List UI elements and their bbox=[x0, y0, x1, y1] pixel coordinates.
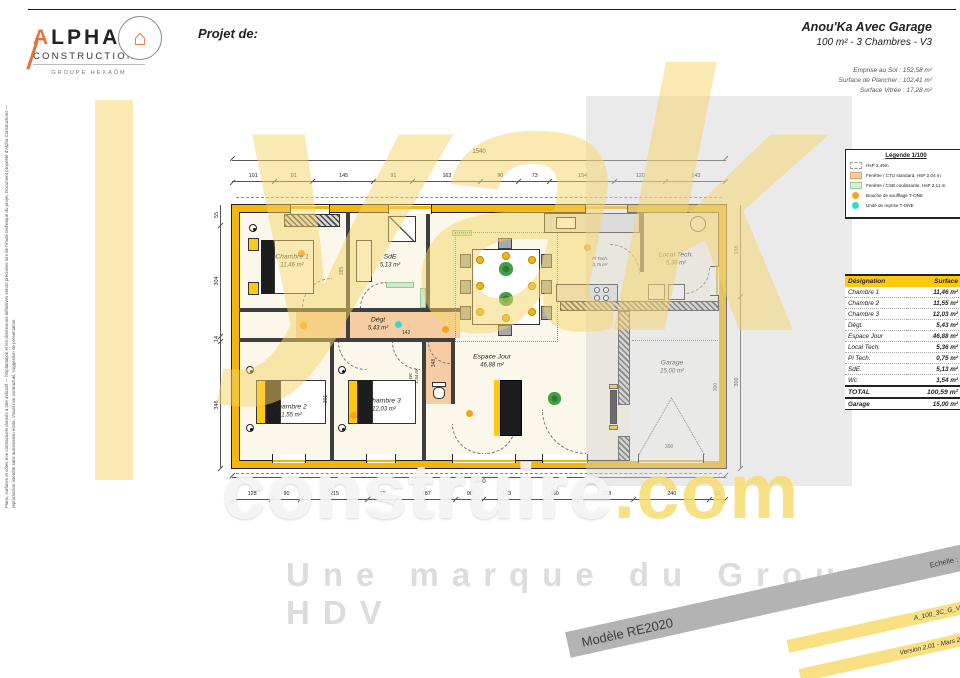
dim-segment: 187 bbox=[397, 498, 456, 500]
tv-shelf bbox=[609, 425, 618, 430]
patio-door-sejour bbox=[452, 454, 516, 463]
inner-dim: 142 bbox=[402, 330, 410, 336]
dim-segment: 90 bbox=[368, 498, 396, 500]
dim-chain-bottom: 12890215901879014316017324052 bbox=[232, 488, 726, 500]
model-code: Modèle RE2020 bbox=[580, 614, 674, 649]
sofa bbox=[500, 380, 522, 436]
table-row: SdE.5,13 m² bbox=[845, 364, 960, 375]
legend-item: Fenêtre / CSB coulissante, HsP 2,11 m bbox=[850, 182, 960, 189]
green-swatch-icon bbox=[850, 182, 862, 189]
room-label-pl-tech: Pl Tech.0,75 m² bbox=[592, 256, 608, 268]
legend-box: Légende 1/100 HsP 2,49mFenêtre / CTU sta… bbox=[845, 149, 960, 219]
wall-localtech-west bbox=[640, 212, 644, 272]
project-label: Projet de: bbox=[198, 26, 258, 41]
supply-vent-dot bbox=[300, 322, 307, 329]
lamp-icon bbox=[338, 424, 346, 432]
lamp-icon bbox=[246, 366, 254, 374]
chair bbox=[541, 280, 552, 294]
scale-label: Echelle : 1/75 bbox=[929, 551, 960, 570]
dim-segment: 90 bbox=[481, 180, 519, 182]
dim-segment: 240 bbox=[634, 498, 710, 500]
patio-door-sejour-2 bbox=[542, 454, 588, 463]
metric-emprise: Emprise au Sol : 152,58 m² bbox=[838, 66, 932, 76]
plan-sheet: AALPHALPHA CONSTRUCTIONS GROUPE HEXAÔM ⌂… bbox=[0, 0, 960, 678]
metric-plancher: Surface de Plancher : 102,41 m² bbox=[838, 76, 932, 86]
legend-item: Bouche de soufflage T-ONE bbox=[850, 192, 960, 199]
dashed-white-swatch-icon bbox=[850, 162, 862, 169]
water-heater bbox=[690, 216, 706, 232]
green-joinery-band-1 bbox=[386, 282, 414, 288]
plate bbox=[528, 308, 536, 316]
table-header-designation: Désignation bbox=[845, 276, 907, 287]
legal-disclaimer: Plans, surfaces et côtes non contractuel… bbox=[3, 88, 16, 508]
washer bbox=[648, 284, 665, 300]
wall-wc-east bbox=[451, 338, 455, 404]
model-subtitle: 100 m² - 3 Chambres - V3 bbox=[802, 37, 932, 48]
table-row: Local Tech.5,36 m² bbox=[845, 342, 960, 353]
dim-chain-right: 158300 bbox=[734, 205, 746, 468]
table-row: Garage15,00 m² bbox=[845, 398, 960, 410]
hob-burner bbox=[594, 287, 600, 293]
wall-chambre1-south bbox=[239, 308, 350, 312]
roof-overhang-line-top bbox=[236, 197, 722, 198]
legend-items: HsP 2,49mFenêtre / CTU standard, HsP 2,0… bbox=[849, 162, 960, 209]
dim-segment: 143 bbox=[484, 498, 529, 500]
dim-segment: 91 bbox=[374, 180, 412, 182]
chair bbox=[460, 254, 471, 268]
supply-vent-dot bbox=[442, 326, 449, 333]
wardrobe-chambre1 bbox=[284, 214, 340, 227]
surface-metrics: Emprise au Sol : 152,58 m² Surface de Pl… bbox=[838, 66, 932, 95]
plate bbox=[528, 256, 536, 264]
plate bbox=[476, 308, 484, 316]
dim-segment: 215 bbox=[301, 498, 369, 500]
inner-dim: 300 bbox=[665, 444, 673, 450]
wall-chambre3-east bbox=[422, 342, 426, 461]
hob-burner bbox=[603, 295, 609, 301]
garage-floor bbox=[630, 311, 719, 461]
chair bbox=[498, 325, 512, 336]
vanity bbox=[356, 240, 372, 282]
window-top-chambre1 bbox=[290, 205, 330, 214]
legend-item: Unité de reprise T-ONE bbox=[850, 202, 960, 209]
chair bbox=[460, 306, 471, 320]
surface-table-body: Chambre 111,46 m²Chambre 211,55 m²Chambr… bbox=[845, 287, 960, 410]
model-title: Anou'Ka Avec Garage bbox=[802, 20, 932, 34]
lamp-icon bbox=[246, 424, 254, 432]
chair bbox=[541, 254, 552, 268]
dim-segment: 346 bbox=[220, 341, 222, 468]
room-label-wc: Wc1,54 m² bbox=[408, 369, 420, 384]
nightstand bbox=[248, 282, 259, 295]
chair bbox=[498, 238, 512, 249]
plate bbox=[502, 314, 510, 322]
orange-swatch-icon bbox=[850, 172, 862, 179]
plate bbox=[502, 252, 510, 260]
window-top-sde bbox=[388, 205, 432, 214]
watermark-bar bbox=[95, 100, 133, 480]
metric-vitree: Surface Vitrée : 17,28 m² bbox=[838, 86, 932, 96]
green-joinery-band-2 bbox=[420, 288, 426, 308]
dim-segment: 145 bbox=[313, 180, 374, 182]
room-label-chambre2: Chambre 211,55 m² bbox=[273, 404, 307, 421]
table-header-row: Désignation Surface bbox=[845, 276, 960, 287]
dim-segment: 154 bbox=[550, 180, 615, 182]
dim-segment: 55 bbox=[220, 205, 222, 225]
dim-segment: 173 bbox=[580, 498, 635, 500]
table-row: Chambre 312,03 m² bbox=[845, 309, 960, 320]
dim-segment: 160 bbox=[529, 498, 579, 500]
dim-segment: 158 bbox=[740, 205, 742, 296]
cyan-dot-swatch-icon bbox=[850, 202, 862, 209]
logo-house-stamp-icon: ⌂ bbox=[118, 16, 162, 60]
wall-sde-east bbox=[426, 212, 430, 312]
dim-segment: 91 bbox=[275, 180, 313, 182]
hob-burner bbox=[594, 295, 600, 301]
wall-garage-west-hatched-lower bbox=[618, 436, 630, 461]
door-exterior-localtech bbox=[710, 266, 719, 296]
plant-icon bbox=[499, 262, 513, 276]
plan-reference: A_100_3C_G_V3 bbox=[913, 604, 960, 622]
dim-segment: 120 bbox=[615, 180, 666, 182]
room-label-degt: Dégt5,43 m² bbox=[368, 317, 388, 334]
orange-dot-swatch-icon bbox=[850, 192, 862, 199]
room-label-sde: SdE5,13 m² bbox=[380, 254, 400, 271]
wall-garage-north-hatched bbox=[560, 301, 719, 311]
legend-item: HsP 2,49m bbox=[850, 162, 960, 169]
dim-chain-left: 5530414346 bbox=[214, 205, 226, 468]
dim-segment: 90 bbox=[272, 498, 300, 500]
garage-ceiling-line bbox=[632, 340, 718, 341]
table-row: Pl Tech.0,75 m² bbox=[845, 353, 960, 364]
shower bbox=[388, 216, 416, 242]
garage-door-opening bbox=[638, 454, 704, 463]
table-row: Chambre 111,46 m² bbox=[845, 287, 960, 298]
dim-segment: 73 bbox=[519, 180, 550, 182]
plant-icon bbox=[548, 392, 561, 405]
plate bbox=[528, 282, 536, 290]
lamp-icon bbox=[249, 224, 257, 232]
dim-segment: 101 bbox=[232, 180, 275, 182]
logo-group-name: GROUPE HEXAÔM bbox=[33, 70, 145, 76]
plant-icon bbox=[499, 292, 513, 306]
inner-dim: 385 bbox=[339, 267, 345, 275]
return-vent-dot bbox=[395, 321, 402, 328]
plate bbox=[476, 282, 484, 290]
dryer bbox=[668, 284, 685, 300]
sheet-top-border bbox=[28, 9, 956, 10]
inner-dim: 301 bbox=[323, 395, 329, 403]
hob-burner bbox=[603, 287, 609, 293]
bed-pillows bbox=[256, 380, 266, 424]
table-row: Espace Jour46,88 m² bbox=[845, 331, 960, 342]
supply-vent-dot bbox=[584, 244, 591, 251]
table-row: Dégt.5,43 m² bbox=[845, 320, 960, 331]
chair bbox=[460, 280, 471, 294]
dim-bottom-overall-line bbox=[232, 477, 726, 478]
dim-segment: 163 bbox=[413, 180, 482, 182]
toilet bbox=[433, 387, 445, 399]
legend-title: Légende 1/100 bbox=[849, 153, 960, 159]
room-label-garage: Garage15,00 m² bbox=[660, 360, 684, 377]
dim-bottom-overall: 1540 bbox=[472, 479, 485, 485]
dim-segment: 128 bbox=[232, 498, 272, 500]
dim-top-overall: 1540 bbox=[472, 149, 485, 155]
plate bbox=[476, 256, 484, 264]
inner-dim: 348 bbox=[431, 359, 437, 367]
table-row: TOTAL100,59 m² bbox=[845, 386, 960, 398]
title-block: Anou'Ka Avec Garage 100 m² - 3 Chambres … bbox=[802, 20, 932, 48]
wall-chambre2-east bbox=[330, 342, 334, 461]
dim-segment: 143 bbox=[666, 180, 726, 182]
room-label-chambre3: Chambre 312,03 m² bbox=[367, 398, 401, 415]
dim-segment: 52 bbox=[710, 498, 726, 500]
room-label-espace-jour: Espace Jour46,88 m² bbox=[473, 354, 511, 371]
window-bottom-chambre3 bbox=[366, 454, 396, 463]
wall-corridor-north bbox=[350, 308, 462, 312]
room-label-local-tech: Local Tech.5,36 m² bbox=[659, 252, 694, 269]
chair bbox=[541, 306, 552, 320]
table-row: Wc1,54 m² bbox=[845, 375, 960, 387]
legend-item: Fenêtre / CTU standard, HsP 2,04 m bbox=[850, 172, 960, 179]
roof-overhang-line-bottom bbox=[236, 473, 722, 474]
dim-segment: 304 bbox=[220, 225, 222, 336]
lamp-icon bbox=[338, 366, 346, 374]
dim-top-overall-line bbox=[232, 160, 726, 161]
supply-vent-dot bbox=[350, 412, 357, 419]
plan-version: Version 2.01 - Mars 2023 bbox=[899, 634, 960, 657]
supply-vent-dot bbox=[466, 410, 473, 417]
tv-shelf bbox=[609, 384, 618, 389]
tv-unit bbox=[610, 390, 617, 424]
table-row: Chambre 211,55 m² bbox=[845, 298, 960, 309]
dim-segment: 300 bbox=[740, 296, 742, 468]
wall-garage-west-hatched-upper bbox=[618, 311, 630, 405]
inner-dim: 300 bbox=[713, 383, 719, 391]
dim-chain-top: 10191145911639073154120143 bbox=[232, 170, 726, 182]
table-header-surface: Surface bbox=[907, 276, 960, 287]
bed-headboard bbox=[261, 240, 274, 294]
window-bottom-chambre2 bbox=[272, 454, 306, 463]
surface-table: Désignation Surface Chambre 111,46 m²Cha… bbox=[845, 274, 960, 410]
dim-segment: 90 bbox=[456, 498, 484, 500]
footer-band-model: Modèle RE2020 Echelle : 1/75 bbox=[565, 524, 960, 658]
room-label-chambre1: Chambre 111,46 m² bbox=[275, 254, 309, 271]
wall-chambre1-east bbox=[346, 212, 350, 338]
kitchen-sink bbox=[556, 217, 576, 229]
nightstand bbox=[248, 238, 259, 251]
